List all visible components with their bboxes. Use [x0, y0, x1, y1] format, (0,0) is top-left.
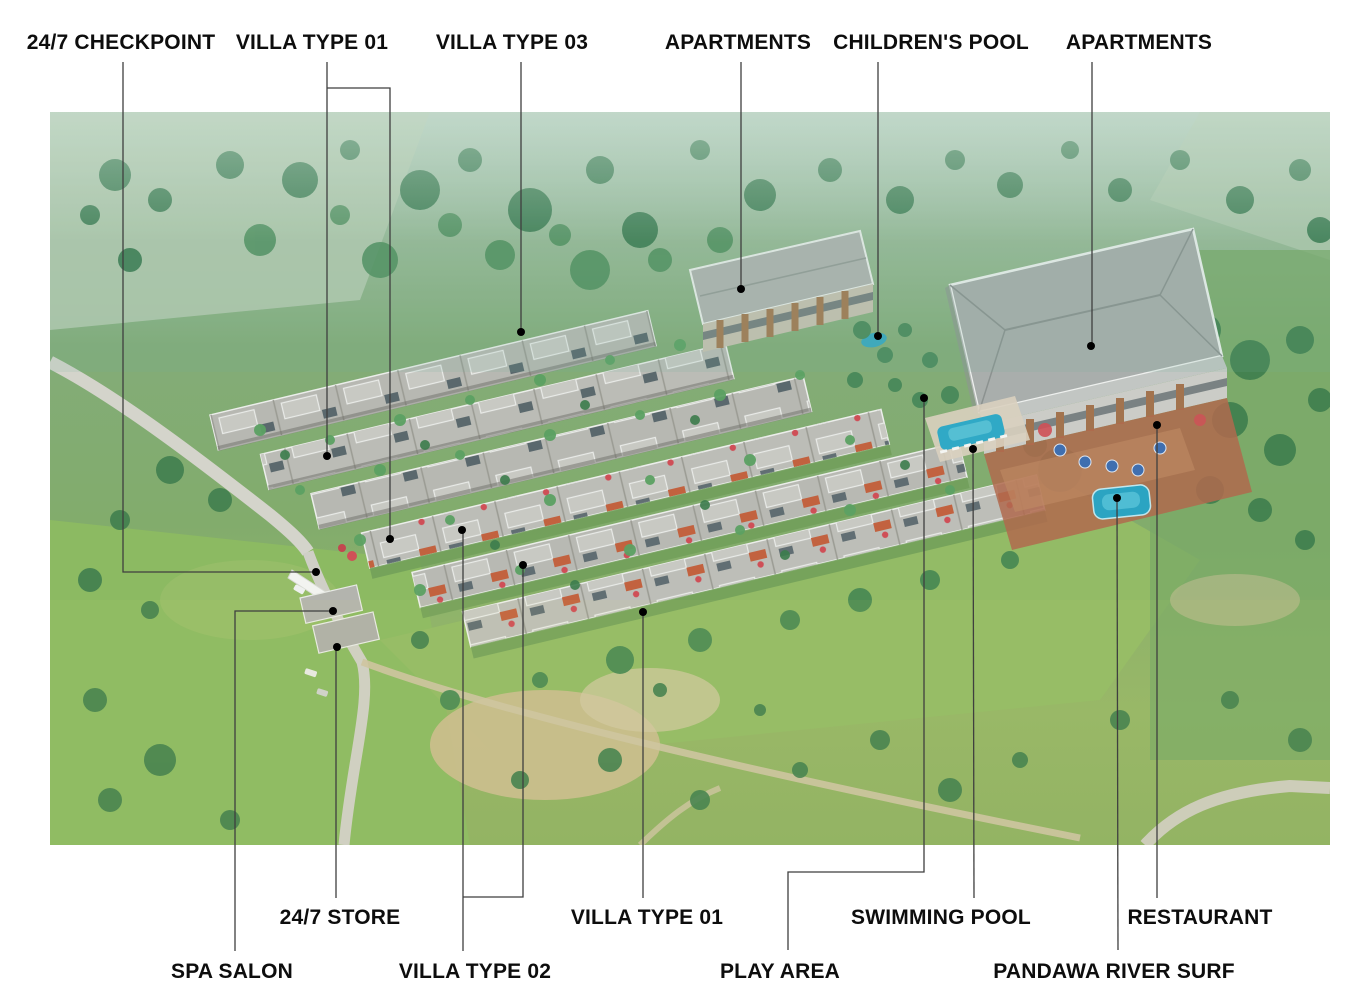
annotated-resort-masterplan: 24/7 CHECKPOINTVILLA TYPE 01VILLA TYPE 0… — [0, 0, 1372, 1000]
resort-aerial-photo — [0, 0, 1372, 1000]
